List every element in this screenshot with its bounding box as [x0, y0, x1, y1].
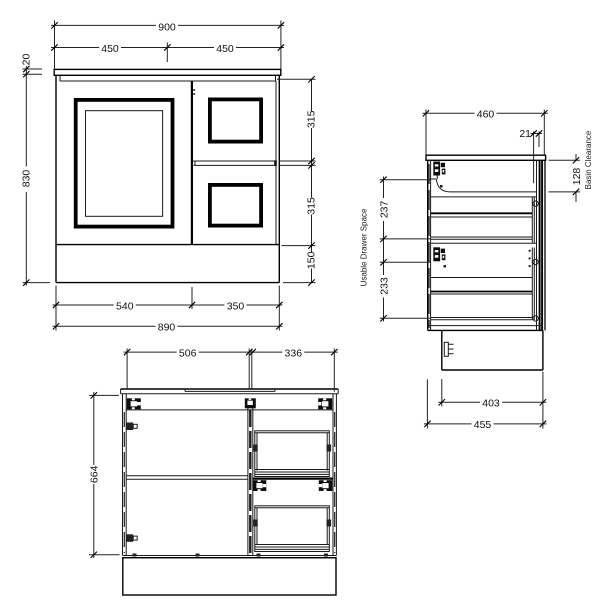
svg-text:540: 540 — [116, 300, 134, 312]
svg-text:21: 21 — [519, 128, 531, 140]
svg-text:450: 450 — [101, 43, 119, 55]
svg-text:890: 890 — [158, 322, 176, 334]
svg-text:128: 128 — [571, 168, 583, 186]
svg-text:403: 403 — [482, 398, 500, 410]
svg-text:315: 315 — [306, 197, 318, 215]
svg-text:20: 20 — [21, 54, 33, 66]
svg-text:506: 506 — [179, 347, 197, 359]
svg-text:315: 315 — [306, 110, 318, 128]
svg-text:Usable Drawer Space: Usable Drawer Space — [360, 208, 369, 286]
svg-text:237: 237 — [379, 200, 391, 218]
svg-text:664: 664 — [89, 465, 101, 483]
svg-text:150: 150 — [306, 251, 318, 269]
svg-text:830: 830 — [21, 170, 33, 188]
svg-text:Basin Clearance: Basin Clearance — [584, 130, 593, 189]
svg-text:233: 233 — [379, 277, 391, 295]
svg-text:460: 460 — [477, 109, 495, 121]
svg-text:350: 350 — [227, 300, 245, 312]
svg-text:450: 450 — [216, 43, 234, 55]
svg-text:900: 900 — [158, 21, 176, 33]
svg-text:336: 336 — [285, 347, 303, 359]
svg-text:455: 455 — [474, 419, 492, 431]
